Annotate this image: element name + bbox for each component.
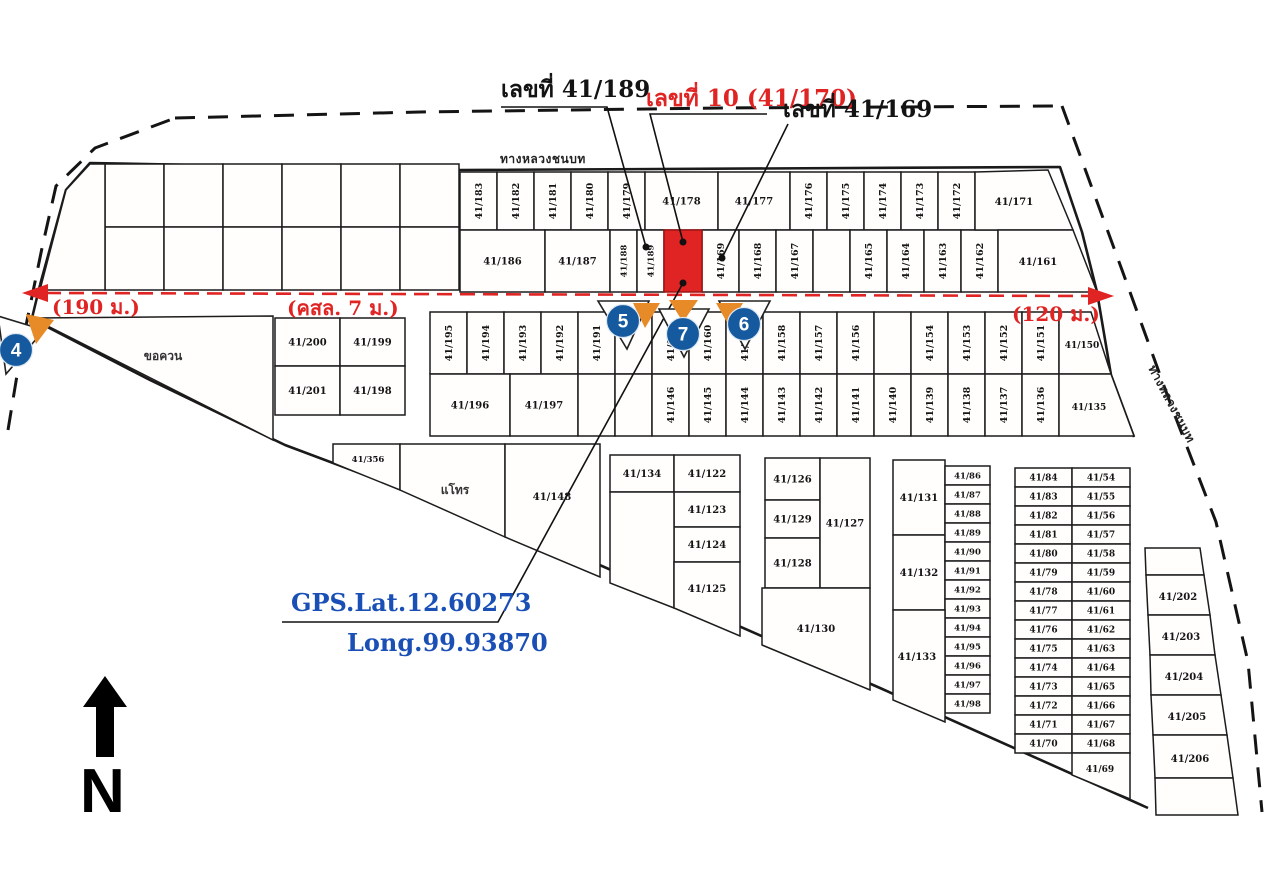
plot-cell — [893, 610, 945, 722]
dim-west-label: (190 ม.) — [52, 295, 140, 319]
plot-label: 41/134 — [623, 469, 661, 480]
plot-label: 41/58 — [1087, 550, 1115, 560]
plot-label: 41/146 — [666, 386, 677, 423]
plot-label: 41/163 — [938, 243, 949, 280]
plot-label: 41/69 — [1086, 765, 1114, 775]
plot-label: 41/88 — [954, 510, 981, 520]
plot-label: 41/172 — [952, 183, 963, 220]
plot-label: 41/150 — [1065, 341, 1100, 351]
plot-label: 41/132 — [900, 568, 938, 579]
plot-label: 41/356 — [352, 455, 385, 465]
marker-number-6: 6 — [739, 315, 750, 336]
plot-label: 41/125 — [688, 584, 726, 595]
plot-cell — [674, 562, 740, 636]
plot-label: 41/98 — [954, 700, 981, 710]
plots-layer: 41/18341/18241/18141/18041/17941/17841/1… — [32, 164, 1238, 815]
plot-label: 41/181 — [548, 183, 559, 220]
plot-label: 41/193 — [518, 325, 529, 362]
plot-cell — [105, 227, 164, 290]
north-arrow-icon — [83, 676, 127, 707]
plot-label: 41/81 — [1029, 531, 1057, 541]
plot-label: 41/127 — [826, 519, 864, 530]
plot-cell — [1155, 778, 1238, 815]
plot-label: 41/54 — [1087, 474, 1115, 484]
plot-label: 41/93 — [954, 605, 981, 615]
plot-label: 41/183 — [474, 183, 485, 220]
north-letter: N — [80, 757, 125, 826]
plot-label: 41/63 — [1087, 645, 1115, 655]
plot-cell — [105, 164, 164, 227]
plot-label: 41/79 — [1029, 569, 1057, 579]
plot-label: 41/97 — [954, 681, 981, 691]
plot-label: 41/187 — [558, 257, 596, 268]
plot-label: 41/64 — [1087, 664, 1115, 674]
marker-number-7: 7 — [678, 325, 689, 346]
plot-label: 41/92 — [954, 586, 981, 596]
plot-label: 41/182 — [511, 183, 522, 220]
plot-label: 41/176 — [804, 182, 815, 219]
plot-cell — [164, 227, 223, 290]
right-road-label: ทางหลวงชนบท — [1145, 363, 1198, 445]
plot-label: 41/78 — [1029, 588, 1057, 598]
plot-label: 41/180 — [585, 182, 596, 219]
plot-label: 41/186 — [483, 257, 521, 268]
plot-label: 41/177 — [735, 197, 773, 208]
plot-label: 41/199 — [353, 338, 391, 349]
plot-label: 41/152 — [999, 325, 1010, 362]
plot-label: 41/153 — [962, 325, 973, 362]
plot-label: 41/131 — [900, 493, 938, 504]
plot-cell — [164, 164, 223, 227]
plot-label: 41/202 — [1159, 592, 1197, 603]
plot-label: 41/82 — [1029, 512, 1057, 522]
plot-cell — [578, 374, 615, 436]
plot-label: 41/67 — [1087, 721, 1115, 731]
plot-label: 41/145 — [703, 387, 714, 424]
north-arrow-shaft — [96, 707, 114, 757]
plot-label: 41/66 — [1087, 702, 1115, 712]
plot-label: 41/73 — [1029, 683, 1057, 693]
plot-cell — [40, 164, 105, 290]
plot-label: 41/56 — [1087, 512, 1115, 522]
plot-label: 41/89 — [954, 529, 981, 539]
plot-label: 41/151 — [1036, 325, 1047, 362]
plot-label: 41/65 — [1087, 683, 1115, 693]
plot-label: 41/59 — [1087, 569, 1115, 579]
plot-label: 41/128 — [773, 559, 811, 570]
plot-label: 41/203 — [1162, 632, 1200, 643]
plot-label: 41/144 — [740, 386, 751, 423]
mid-area-label: แโทร — [441, 482, 470, 497]
plot-label: 41/140 — [888, 386, 899, 423]
plot-label: 41/70 — [1029, 740, 1057, 750]
plot-label: 41/133 — [898, 652, 936, 663]
plot-label: 41/137 — [999, 387, 1010, 424]
plot-label: 41/204 — [1165, 672, 1203, 683]
plot-label: 41/162 — [975, 243, 986, 280]
plot-label: 41/91 — [954, 567, 981, 577]
plot-label: 41/141 — [851, 387, 862, 424]
plot-label: 41/126 — [773, 475, 811, 486]
plot-label: 41/156 — [851, 324, 862, 361]
plot-cell — [610, 492, 674, 608]
plot-label: 41/200 — [288, 338, 326, 349]
plot-label: 41/71 — [1029, 721, 1057, 731]
plot-label: 41/201 — [288, 386, 326, 397]
leader-dot-target-top — [680, 239, 687, 246]
plot-label: 41/157 — [814, 325, 825, 362]
plot-label: 41/83 — [1029, 493, 1057, 503]
plot-label: 41/84 — [1029, 474, 1057, 484]
plot-cell — [813, 230, 850, 292]
plot-label: 41/57 — [1087, 531, 1115, 541]
plot-label: 41/205 — [1168, 712, 1206, 723]
leader-dot-gps — [680, 280, 687, 287]
plot-label: 41/129 — [773, 515, 811, 526]
plot-cell — [223, 164, 282, 227]
plot-label: 41/138 — [962, 386, 973, 423]
plot-label: 41/164 — [901, 242, 912, 279]
plot-label: 41/167 — [790, 243, 801, 280]
plot-label: 41/173 — [915, 183, 926, 220]
top-road-label: ทางหลวงชนบท — [500, 152, 586, 166]
plot-cell — [400, 164, 459, 227]
plot-label: 41/62 — [1087, 626, 1115, 636]
plot-label: 41/95 — [954, 643, 981, 653]
plot-label: 41/142 — [814, 387, 825, 424]
plot-label: 41/191 — [592, 325, 603, 362]
plot-label: 41/135 — [1072, 403, 1107, 413]
plot-label: 41/158 — [777, 324, 788, 361]
plot-label: 41/76 — [1029, 626, 1057, 636]
plot-label: 41/90 — [954, 548, 981, 558]
plot-label: 41/178 — [662, 197, 700, 208]
dim-east-label: (120 ม.) — [1012, 302, 1100, 326]
plot-label: 41/171 — [995, 197, 1033, 208]
plot-label: 41/195 — [444, 325, 455, 362]
north-arrow: N — [80, 676, 127, 826]
plot-cell — [505, 444, 600, 577]
plot-label: 41/160 — [703, 324, 714, 361]
plot-label: 41/96 — [954, 662, 981, 672]
plot-label: 41/175 — [841, 183, 852, 220]
map-svg: ทางหลวงชนบท ทางหลวงชนบท 41/18341/18241/1… — [0, 0, 1280, 882]
plot-label: 41/86 — [954, 472, 981, 482]
gps-longitude: Long.99.93870 — [347, 628, 548, 657]
left-area-label: ขอควน — [144, 349, 183, 363]
plot-cell — [333, 444, 400, 490]
plot-label: 41/55 — [1087, 493, 1115, 503]
plot-cell — [223, 227, 282, 290]
plot-label: 41/124 — [688, 540, 726, 551]
marker-number-5: 5 — [618, 312, 629, 333]
plot-label: 41/179 — [622, 182, 633, 219]
plot-label: 41/139 — [925, 386, 936, 423]
plot-cell — [762, 588, 870, 690]
road-centerline — [46, 293, 1090, 296]
plot-cell — [874, 312, 911, 374]
plot-label: 41/60 — [1087, 588, 1115, 598]
gps-latitude: GPS.Lat.12.60273 — [291, 588, 532, 617]
plot-cell — [341, 164, 400, 227]
plot-cell — [1145, 548, 1204, 575]
plot-label: 41/174 — [878, 182, 889, 219]
plot-label: 41/194 — [481, 324, 492, 361]
plot-cell — [400, 227, 459, 290]
leader-dot-41-189 — [643, 244, 650, 251]
plot-label: 41/154 — [925, 324, 936, 361]
plot-cell — [1072, 753, 1130, 799]
plot-label: 41/165 — [864, 243, 875, 280]
plot-label: 41/198 — [353, 386, 391, 397]
label-plot-41-189: เลขที่ 41/189 — [501, 72, 650, 103]
plot-label: 41/87 — [954, 491, 981, 501]
leader-dot-41-169 — [719, 255, 726, 262]
plot-label: 41/168 — [753, 242, 764, 279]
plot-cell — [615, 374, 652, 436]
cadastral-map: ทางหลวงชนบท ทางหลวงชนบท 41/18341/18241/1… — [0, 0, 1280, 882]
plot-label: 41/197 — [525, 401, 563, 412]
plot-label: 41/77 — [1029, 607, 1057, 617]
plot-label: 41/74 — [1029, 664, 1057, 674]
plot-label: 41/192 — [555, 325, 566, 362]
plot-cell — [282, 164, 341, 227]
plot-label: 41/80 — [1029, 550, 1057, 560]
plot-cell — [32, 316, 273, 440]
plot-label: 41/61 — [1087, 607, 1115, 617]
plot-label: 41/75 — [1029, 645, 1057, 655]
plot-cell — [341, 227, 400, 290]
plot-label: 41/72 — [1029, 702, 1057, 712]
plot-cell — [282, 227, 341, 290]
marker-number-4: 4 — [11, 341, 22, 362]
plot-label: 41/143 — [777, 387, 788, 424]
plot-label: 41/188 — [620, 245, 630, 278]
plot-label: 41/68 — [1087, 740, 1115, 750]
plot-label: 41/196 — [451, 401, 489, 412]
plot-label: 41/136 — [1036, 386, 1047, 423]
plot-label: 41/161 — [1019, 257, 1057, 268]
plot-label: 41/94 — [954, 624, 981, 634]
plot-label: 41/122 — [688, 469, 726, 480]
label-plot-41-169: เลขที่ 41/169 — [783, 92, 932, 123]
plot-label: 41/130 — [797, 624, 835, 635]
plot-label: 41/206 — [1171, 754, 1209, 765]
dim-mid-label: (คสล. 7 ม.) — [287, 296, 399, 320]
plot-label: 41/123 — [688, 505, 726, 516]
